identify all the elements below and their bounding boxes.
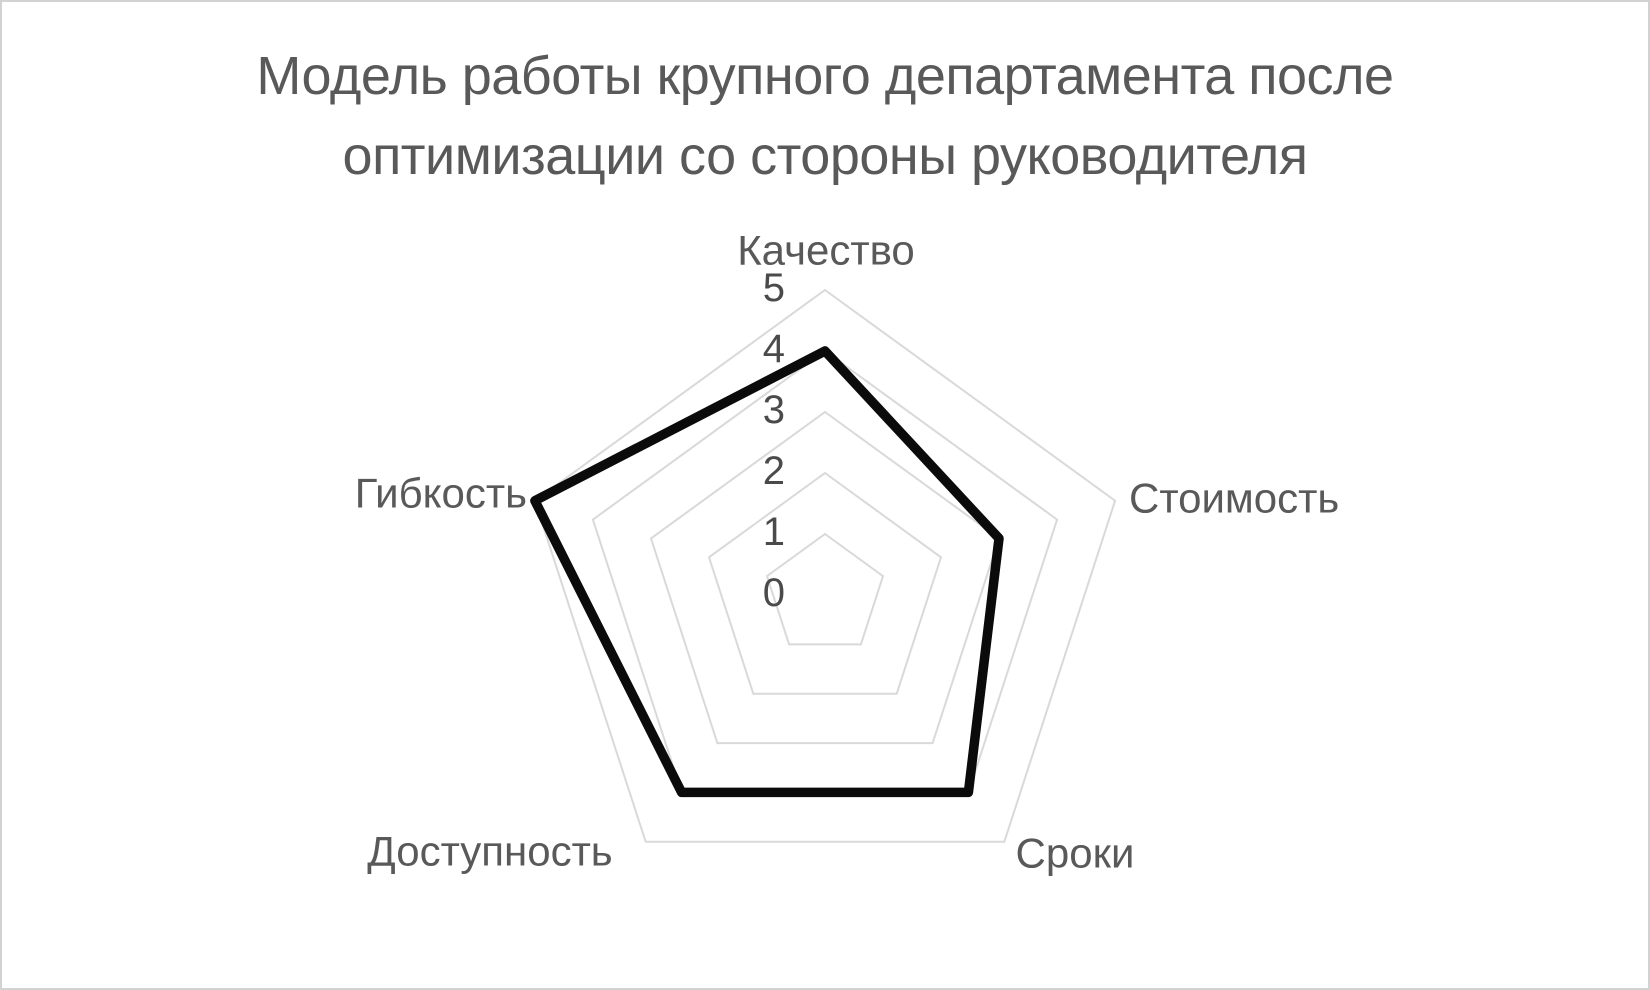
radar-chart: 012345КачествоСтоимостьСрокиДоступностьГ…: [2, 2, 1650, 990]
axis-tick-label-3: 3: [763, 388, 785, 432]
chart-canvas: Модель работы крупного департамента посл…: [0, 0, 1650, 990]
axis-tick-label-4: 4: [763, 327, 785, 371]
grid-ring-2: [709, 473, 941, 694]
category-label-5: Гибкость: [355, 470, 527, 517]
axis-tick-label-2: 2: [763, 449, 785, 493]
category-label-3: Сроки: [1016, 830, 1135, 877]
grid-ring-5: [535, 290, 1115, 842]
category-label-4: Доступность: [367, 828, 612, 875]
axis-tick-label-1: 1: [763, 510, 785, 554]
category-label-1: Качество: [737, 227, 915, 274]
axis-tick-label-0: 0: [763, 571, 785, 615]
category-label-2: Стоимость: [1129, 475, 1339, 522]
